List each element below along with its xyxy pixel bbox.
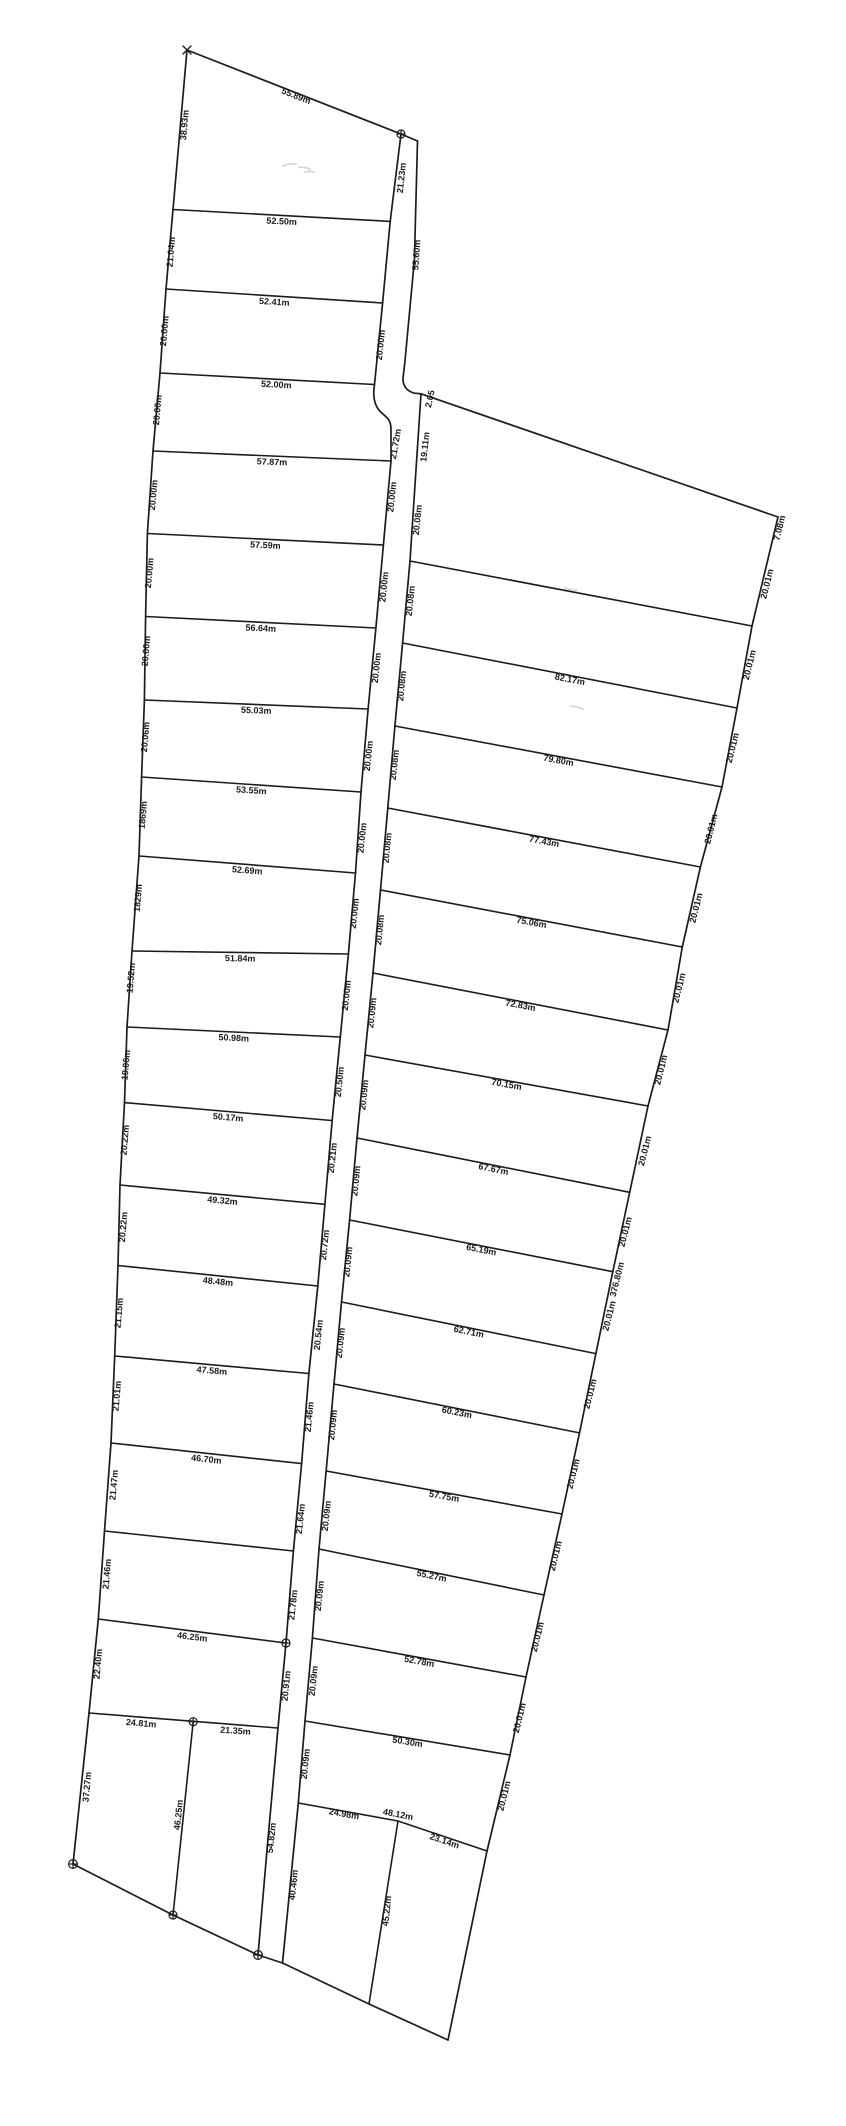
svg-text:57.59m: 57.59m xyxy=(250,539,281,550)
svg-text:57.87m: 57.87m xyxy=(257,456,288,467)
svg-text:52.00m: 52.00m xyxy=(261,379,292,391)
svg-text:55.03m: 55.03m xyxy=(241,705,272,716)
svg-text:52.50m: 52.50m xyxy=(266,215,297,227)
svg-text:50.98m: 50.98m xyxy=(218,1032,249,1043)
svg-text:51.84m: 51.84m xyxy=(225,953,256,963)
svg-text:52.41m: 52.41m xyxy=(259,296,290,308)
svg-text:56.64m: 56.64m xyxy=(245,622,276,634)
svg-text:53.55m: 53.55m xyxy=(236,784,267,796)
svg-text:55.60m: 55.60m xyxy=(410,239,422,270)
